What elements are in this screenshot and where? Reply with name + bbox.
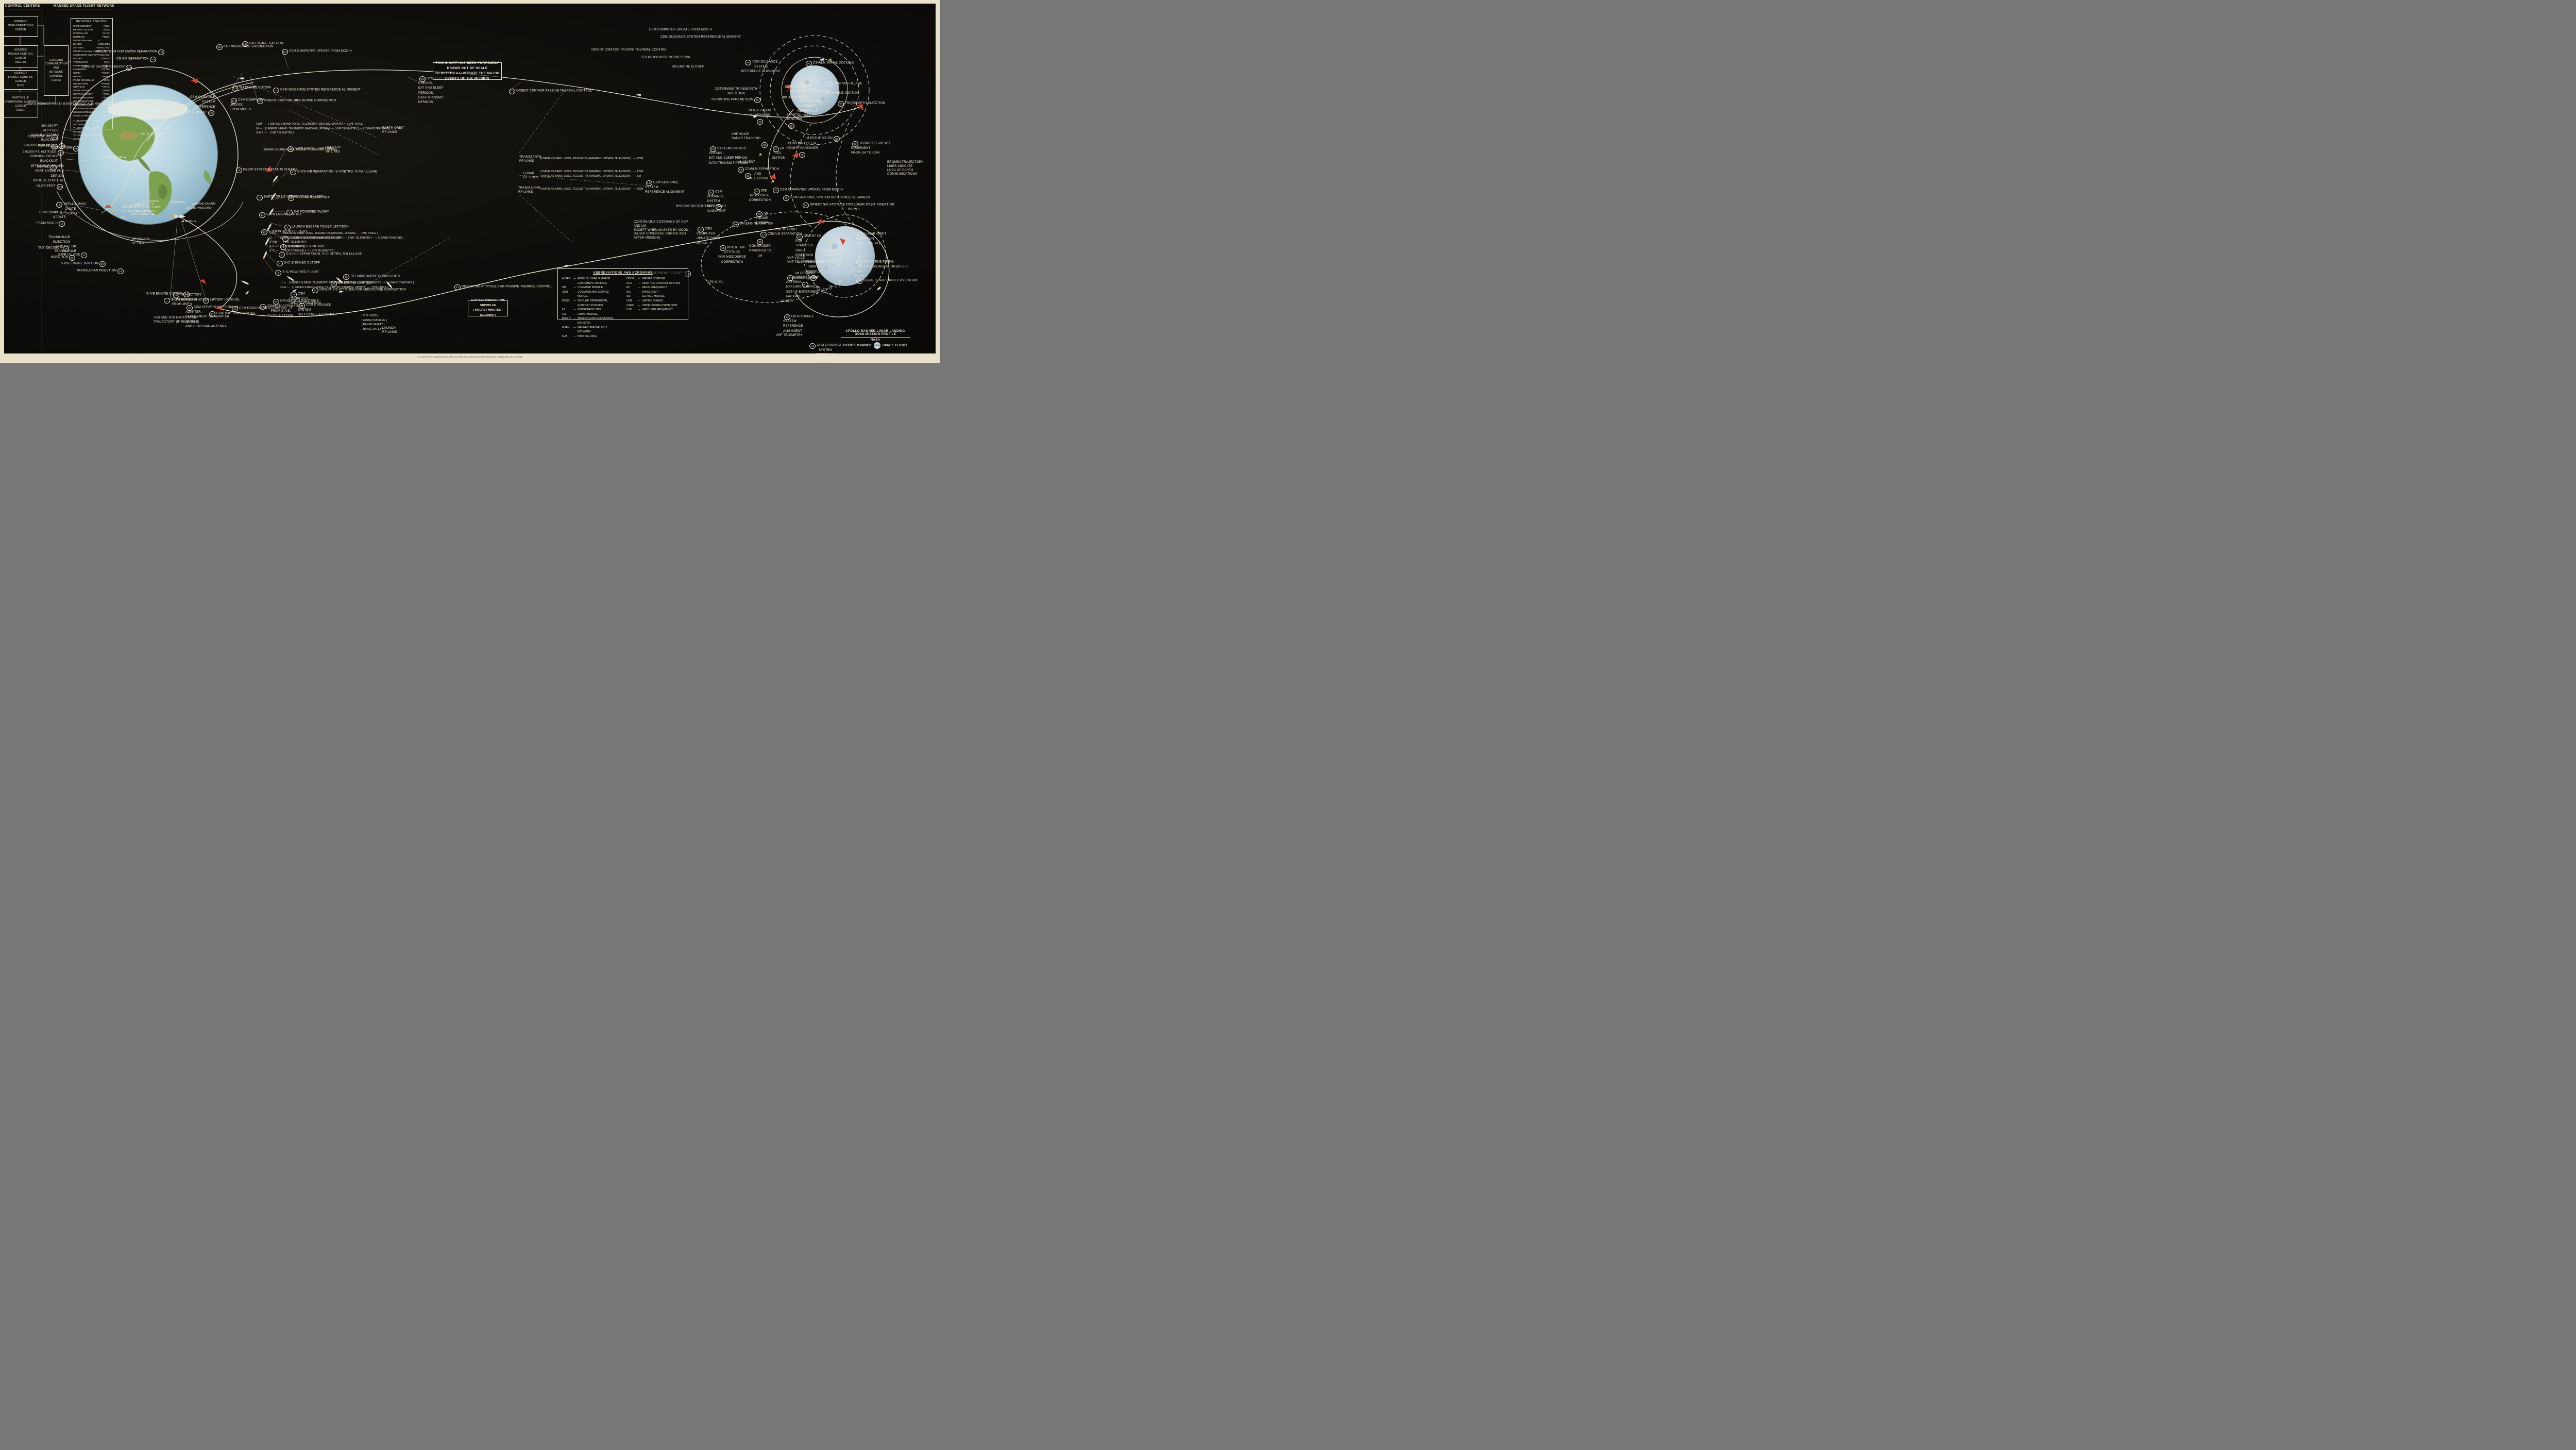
- event-callout: 102CSM GUIDANCE SYSTEMREFERENCE ALIGNMEN…: [645, 180, 686, 196]
- station-name: CARNARVON: [73, 64, 88, 68]
- ground-station-antigua: ANTIGUA: [181, 220, 196, 223]
- rf-source-label: CSM —: [280, 286, 290, 289]
- network-station-row: USNS VANGUARD**(VAN): [73, 96, 110, 100]
- network-station-row: WHITE SANDS(WHS): [73, 89, 110, 93]
- station-name: USNS HUNTSVILLE: [73, 111, 95, 114]
- station-label: GODDARD: [143, 200, 156, 203]
- station-code: *(HTV): [103, 111, 110, 114]
- rf-links-row: CSM —UNIFIED S-BAND: VOICE, TELEMETRY, R…: [278, 286, 415, 289]
- station-label: USNS VANGUARD: [190, 207, 212, 210]
- event-callout: CSM COMPUTER UPDATE FROM MCC-H: [649, 28, 712, 33]
- annotation-label: RECOVERYRF LINKS: [132, 238, 150, 246]
- event-number: 133: [57, 184, 63, 190]
- event-number: 26: [187, 305, 193, 311]
- network-station-row: CORPUS CHRISTI**(TEX): [73, 93, 110, 96]
- rf-links-row: AZUSA TRACKING: [361, 319, 388, 322]
- station-label: ANTIGUA: [185, 220, 196, 223]
- network-station-row: POINT ARGUELLO(CAL): [73, 79, 110, 82]
- rf-links-row: IU —UNIFIED S-BAND: TELEMETRY, RANGING, …: [278, 281, 415, 284]
- rf-link-segment: RANGE SAFETY: [362, 323, 384, 326]
- event-number: 3: [275, 270, 281, 276]
- event-number: 116: [419, 76, 426, 82]
- event-number: 30: [273, 299, 279, 305]
- event-number: 49: [708, 190, 714, 195]
- event-label: TRANSLUNAR INJECTION: [76, 269, 116, 273]
- event-label: CSM COMPUTER UPDATE FROM MCC-H: [649, 28, 712, 31]
- abbreviation-term: MCC-H: [562, 316, 573, 325]
- event-callout: 16BEGIN SYSTEMS STATUS CHECKS: [235, 167, 298, 173]
- annotation-label: VHF TELEMETRY: [776, 334, 803, 338]
- rf-link-segment: RANGE SAFETY: [362, 328, 384, 331]
- rf-links-row: IU —UNIFIED S-BAND: TELEMETRY, RANGING, …: [255, 127, 391, 130]
- event-callout: 122SM ENGINE CUTOFF: [231, 86, 272, 91]
- rf-link-segment: UNIFIED S-BAND: TELEMETRY, RANGING, UPDA…: [265, 127, 330, 130]
- event-label: LM DESCENTENGINE CUTOFF: [792, 272, 819, 280]
- station-dot: [182, 221, 184, 222]
- rf-link-segment: AZUSA TRACKING: [362, 319, 387, 322]
- event-label: CSM 180° TURNAROUND: [216, 312, 255, 315]
- event-number: 56: [803, 203, 809, 208]
- abbreviation-term: SM: [626, 294, 638, 299]
- event-callout: 98TRANSEARTH INJECTION: [837, 101, 885, 107]
- event-callout: CM/SM SEPARATION126: [116, 57, 157, 62]
- event-label: S-IVB ULLAGE: [58, 254, 80, 257]
- event-number: 25: [173, 293, 179, 298]
- event-callout: 91CSM/LM INITIAL DOCKING: [805, 61, 854, 66]
- station-code: (CAL): [104, 79, 110, 82]
- station-code: ***(GDS): [101, 82, 110, 86]
- rf-links-group: IU —UNIFIED S-BAND: TELEMETRY, RANGING, …: [278, 281, 415, 290]
- rf-links-group: CSM —UNIFIED S-BAND: VOICE, TELEMETRY, R…: [268, 232, 404, 254]
- rf-link-segment: UNIFIED S-BAND: VOICE, TELEMETRY, RANGIN…: [540, 188, 631, 191]
- abbreviation-definition: REACTION CONTROL SYSTEM: [642, 281, 680, 286]
- elapsed-line2: ( HOURS : MINUTES : SECONDS ): [468, 308, 507, 318]
- annotation-label: 60 N. M. ORBIT: [774, 228, 797, 232]
- station-label: BERMUDA: [173, 201, 186, 204]
- station-code: **(MER): [101, 104, 110, 107]
- network-station-row: ASCENSION ISLAND**(ACN,ASC): [73, 54, 110, 57]
- station-name: USNS WATERTOWN: [73, 107, 96, 111]
- abbreviation-row: N.M.—NAUTICAL MILE: [562, 334, 619, 339]
- event-callout: CSM GUIDANCE SYSTEMREFERENCE ALIGNMENT12…: [179, 96, 215, 116]
- station-name: GUAM: [73, 72, 80, 75]
- station-name: GRAND BAHAMA ISLAND: [73, 39, 98, 46]
- abbreviation-row: RCS—REACTION CONTROL SYSTEM: [626, 281, 684, 286]
- mission-title-line2: GOSS-MISSION PROFILE: [837, 333, 914, 336]
- abbreviation-row: SM—SERVICE MODULE: [626, 294, 684, 299]
- annotation-label: 2ND AND 3RD EARTH ORBITTRAJECTORY (IF RE…: [154, 316, 199, 325]
- event-label: CSM GUIDANCE SYSTEM REFERENCE ALIGNMENT: [660, 36, 741, 39]
- event-label: BEGIN SYSTEMS STATUS CHECKS: [243, 168, 298, 172]
- rf-link-segment: UNIFIED S-BAND: VOICE, TELEMETRY, RANGIN…: [282, 232, 356, 235]
- rf-link-segment: VHF TELEMETRY: [280, 245, 304, 248]
- station-label: USNS MERCURY: [103, 156, 123, 159]
- network-station-row: USNS MERCURY**(MER): [73, 104, 110, 107]
- ground-station-bermuda: BERMUDA: [170, 201, 186, 204]
- event-callout: ORIENT CSM FOR PASSIVE THERMAL CONTROL: [591, 48, 667, 53]
- rf-source-label: CSM —: [269, 232, 279, 235]
- rf-links-row: S-IC —ODOP TRACKING—VHF TELEMETRY: [268, 249, 404, 252]
- rf-links-row: S-IVB —VHF TELEMETRY: [255, 131, 391, 134]
- event-label: CONSTANT DELTAHEIGHT MANEUVER: [786, 142, 818, 150]
- event-number: 118: [273, 88, 279, 93]
- event-number: 85: [834, 136, 840, 142]
- rf-links-row: UNIFIED S-BAND: VOICE, TELEMETRY, RANGIN…: [539, 157, 645, 160]
- rf-link-segment: ODOP TRACKING: [281, 249, 306, 252]
- event-number: 92: [852, 141, 858, 147]
- abbreviation-row: MSFN—MANNED SPACEFLIGHT NETWORK: [562, 326, 619, 334]
- event-label: BEGIN LUNAR ORBIT EVALUATION: [863, 279, 918, 282]
- event-number: 79: [799, 90, 805, 95]
- abbreviation-row: LM—LUNAR MODULE: [562, 312, 619, 317]
- event-callout: CONSTANT DELTAHEIGHT MANEUVER86: [785, 142, 819, 158]
- annotation-label: TRANSLUNARRF LINKS: [518, 187, 540, 195]
- station-code: **(GBM,GBI): [98, 39, 110, 46]
- network-station-row: GRAND BAHAMA ISLAND**(GBM,GBI): [73, 39, 110, 46]
- event-label: S-IVB ENGINE IGNITION: [61, 262, 98, 265]
- event-number: 22: [99, 261, 106, 267]
- event-number: 91: [806, 61, 812, 66]
- event-callout: CSM GUIDANCE SYSTEM REFERENCE ALIGNMENT: [660, 36, 741, 40]
- station-code: (TAN): [104, 61, 110, 64]
- event-number: 4: [277, 261, 283, 266]
- huntsville-hosc-box: HUNTSVILLEOPERATIONAL SUPPORTCENTER(HOSC…: [3, 92, 38, 117]
- rf-link-segment: UNIFIED S-BAND: TELEMETRY, RANGING, UPDA…: [279, 237, 344, 240]
- station-code: **(BDA): [102, 36, 110, 39]
- event-label: EARTH ORBIT VERIFICATION BY MSFN: [264, 196, 325, 199]
- event-number: 60: [856, 260, 862, 265]
- rf-source-label: S-II —: [269, 245, 278, 248]
- rf-links-row: VHF VOICE: [361, 314, 388, 317]
- abbreviation-definition: INSTRUMENT UNIT: [578, 308, 601, 312]
- event-number: 82: [745, 173, 751, 179]
- nasa-title-block: APOLLO MANNED LUNAR LANDING GOSS-MISSION…: [837, 330, 914, 349]
- abbreviation-row: VHF—VERY HIGH FREQUENCY: [626, 308, 684, 312]
- event-callout: LM RCS IGNITION85: [805, 136, 841, 142]
- station-name: PATRICK AFB: [73, 32, 88, 36]
- event-callout: 88: [760, 142, 769, 148]
- network-station-row: MERRITT ISLAND**(MIL): [73, 28, 110, 32]
- event-callout: DETERMINE TRANSEARTH INJECTIONTHRUSTING …: [710, 88, 762, 103]
- station-code: (PAFB): [103, 32, 110, 36]
- event-number: 115: [509, 89, 515, 94]
- event-callout: 55CSM GUIDANCE SYSTEM REFERENCE ALIGNMEN…: [782, 195, 871, 201]
- network-station-row: USNS WATERTOWN*(WTN): [73, 107, 110, 111]
- rf-links-row: CSM —UNIFIED S-BAND: VOICE, TELEMETRY, R…: [268, 232, 404, 235]
- abbreviation-row: USNS—UNITED STATES NAVAL SHIP: [626, 304, 684, 308]
- abbreviation-term: RF: [626, 285, 638, 290]
- event-label: CSM GUIDANCE SYSTEM REFERENCE ALIGNMENT: [790, 196, 871, 199]
- event-number: 55: [783, 195, 789, 201]
- network-station-row: MADRID***(MAD): [73, 57, 110, 61]
- station-name: CORPUS CHRISTI: [73, 93, 93, 96]
- event-label: DETERMINE TRANSEARTH INJECTIONTHRUSTING …: [711, 88, 757, 101]
- rf-link-segment: C-BAND TRACKING: [363, 127, 390, 130]
- station-name: GUAYMAS: [73, 86, 85, 89]
- event-callout: 59BEGIN LUNAR ORBIT EVALUATION: [855, 278, 918, 284]
- event-number: 98: [838, 101, 844, 107]
- ground-station-cape-kennedy: CAPE KENNEDY: [131, 213, 155, 216]
- event-callout: 93CSM/LM SEPARATION ANDLM JETTISON: [736, 167, 780, 182]
- event-number: 16: [236, 167, 242, 173]
- abbreviation-definition: OFFSET DOPPLER: [642, 277, 665, 281]
- station-dot: [149, 210, 150, 212]
- abbreviation-row: ALSEP—APOLLO LUNAR SURFACE EXPERIMENT PA…: [562, 277, 619, 285]
- rf-link-segment: UNIFIED S-BAND: VOICE, TELEMETRY, RANGIN…: [540, 157, 631, 160]
- event-label: 3RD MIDCOURSECORRECTION: [749, 190, 771, 203]
- abbreviation-term: LM: [562, 312, 573, 317]
- station-name: USNS REDSTONE: [73, 100, 93, 104]
- event-callout: 49CSM GUIDANCESYSTEMREFERENCEALIGNMENT: [707, 190, 734, 214]
- event-number: 14: [259, 212, 265, 218]
- network-station-row: GRAND CANARY ISLAND**(CYI): [73, 50, 110, 54]
- station-code: **(CYI): [103, 50, 110, 54]
- station-name: GOLDSTONE: [73, 82, 88, 86]
- event-label: COMMANDERTRANSFER TO LM: [749, 245, 771, 258]
- event-label: 5TH MIDCOURSE CORRECTION: [641, 56, 690, 59]
- event-callout: 523RD MIDCOURSECORRECTION: [745, 189, 775, 204]
- station-name: CANBERRA: [73, 68, 87, 72]
- event-number: 87: [773, 146, 779, 152]
- annotation-label: BROKEN TRAJECTORY LINES INDICATELOSS OF …: [887, 161, 934, 177]
- rf-source-label: — CSM: [634, 157, 643, 160]
- network-station-row: PATRICK AFB(PAFB): [73, 32, 110, 36]
- station-code: (CNV): [104, 25, 110, 28]
- rf-link-segment: VHF TELEMETRY: [335, 127, 359, 130]
- abbreviation-term: N.M.: [562, 334, 573, 339]
- event-number: 15: [257, 195, 263, 200]
- abbreviation-term: USNS: [626, 304, 638, 308]
- ground-station-usns-vanguard: USNS VANGUARD: [186, 207, 212, 210]
- event-callout: CSM COMPUTER UPDATEFROM MCC-H18: [31, 211, 66, 227]
- annotation-label: 100 N. M. ORBIT: [140, 133, 165, 137]
- event-callout: 58LUNAR ORBIT INSERTION(60 x 170 N. M.): [856, 232, 894, 247]
- event-callout: TRANSLUNAR INJECTION23: [76, 268, 125, 274]
- event-callout: 15EARTH ORBIT VERIFICATION BY MSFN: [256, 195, 325, 200]
- abbreviation-definition: GROUND OPERATIONAL SUPPORT SYSTEMS: [578, 299, 619, 308]
- rf-link-segment: VHF TELEMETRY: [311, 249, 335, 252]
- station-name: BERMUDA: [73, 36, 85, 39]
- houston-mcc-box: HOUSTONMISSION CONTROL CENTER(MCC-H): [3, 45, 38, 68]
- station-name: TANANARIVE: [73, 61, 88, 64]
- gpo-sale-line: For sale by the Superintendent of Docume…: [0, 356, 940, 358]
- network-station-row: GUAM**(GWN): [73, 72, 110, 75]
- event-number: 93: [738, 167, 744, 173]
- event-number: 96: [745, 60, 751, 65]
- abbreviations-right-column: ODOP—OFFSET DOPPLERRCS—REACTION CONTROL …: [626, 277, 684, 339]
- abbreviation-definition: MISSION CONTROL CENTER - HOUSTON: [578, 316, 619, 325]
- rf-links-row: S-IVB —VHF TELEMETRY: [268, 241, 404, 244]
- event-callout: 72LM GUIDANCE SYSTEMREFERENCE ALIGNMENT: [783, 314, 822, 334]
- station-dot: [125, 157, 126, 158]
- rf-link-segment: UNIFIED S-BAND: TELEMETRY, RANGING, UPDA…: [289, 281, 354, 284]
- event-callout: TOUCHDOWN135: [50, 146, 80, 151]
- event-label: SM ENGINE FIRINGORBIT CIRCULARIZATION (6…: [855, 261, 908, 278]
- event-callout: S-IVB ULLAGE21: [58, 252, 88, 258]
- event-number: 127: [126, 65, 132, 71]
- network-station-row: TANANARIVE(TAN): [73, 61, 110, 64]
- station-name: USNS VANGUARD: [73, 96, 94, 100]
- station-dot: [157, 200, 159, 202]
- event-number: 52: [754, 189, 760, 194]
- usb-antenna-footnotes: * USB STATION - 12 FT. ANTENNA** USB STA…: [73, 120, 110, 141]
- station-code: **(CRO): [101, 64, 110, 68]
- event-number: 100: [710, 146, 716, 152]
- network-station-row: BERMUDA**(BDA): [73, 36, 110, 39]
- abbreviation-row: ODOP—OFFSET DOPPLER: [626, 277, 684, 281]
- event-number: 28: [232, 306, 238, 312]
- station-name: MADRID: [73, 57, 82, 61]
- event-label: TRANSEARTH INJECTION: [845, 102, 885, 105]
- rf-link-segment: UNIFIED S-BAND: VOICE, TELEMETRY, RANGIN…: [540, 170, 631, 173]
- abbreviation-row: MCC-H—MISSION CONTROL CENTER - HOUSTON: [562, 316, 619, 325]
- msfn-header: MANNED SPACE FLIGHT NETWORK: [54, 4, 114, 9]
- station-name: CAPE KENNEDY: [73, 25, 92, 28]
- rf-links-row: RANGE SAFETY: [361, 328, 388, 331]
- event-number: 86: [799, 152, 805, 158]
- ground-station-grand-canary: GRAND CANARY: [192, 203, 216, 206]
- station-code: (ARIA): [103, 114, 110, 118]
- event-callout: 118CSM GUIDANCE SYSTEM REFERENCE ALIGNME…: [272, 88, 361, 93]
- rf-link-segment: VHF TELEMETRY: [348, 237, 372, 240]
- annotation-label: LM ASCENT: [737, 161, 755, 165]
- event-number: 102: [646, 180, 652, 186]
- abbreviation-term: IU: [562, 308, 573, 312]
- event-number: 54: [773, 188, 779, 193]
- network-station-row: HAWAII**(HAW): [73, 75, 110, 79]
- network-station-row: GOLDSTONE***(GDS): [73, 82, 110, 86]
- space-flight-label: SPACE FLIGHT: [883, 344, 907, 347]
- event-number: 69: [835, 259, 841, 265]
- abbreviation-definition: SPACECRAFT: [642, 290, 659, 295]
- rf-link-segment: UNIFIED S-BAND: VOICE, TELEMETRY, RANGIN…: [292, 286, 366, 289]
- event-number: 90: [757, 119, 763, 125]
- rf-links-group: UNIFIED S-BAND: VOICE, TELEMETRY, RANGIN…: [539, 157, 645, 162]
- annotation-label: BURN 1: [848, 208, 860, 212]
- event-callout: 48CSM COMPUTERUPDATE FROMMCC-H: [697, 227, 723, 247]
- event-number: 83: [788, 123, 794, 129]
- station-dot: [187, 207, 189, 209]
- abbreviation-row: CM—COMMAND MODULE: [562, 285, 619, 290]
- station-dot: [193, 203, 194, 205]
- abbreviation-term: RCS: [626, 281, 638, 286]
- station-dot: [152, 203, 154, 205]
- event-number: 135: [73, 146, 79, 151]
- abbreviation-term: ALSEP: [562, 277, 573, 285]
- abbreviations-title: ABBREVIATIONS AND ACRONYMS: [562, 272, 684, 275]
- event-number: 61: [809, 343, 816, 349]
- event-callout: 4S-IC ENGINES CUTOFF: [276, 261, 320, 266]
- abbreviation-row: GOSS—GROUND OPERATIONAL SUPPORT SYSTEMS: [562, 299, 619, 308]
- abbreviation-term: S/C: [626, 290, 638, 295]
- event-label: LIFTOFF (00:00:00): [210, 299, 240, 302]
- station-name: GRAND CANARY ISLAND: [73, 50, 101, 54]
- annotation-label: TRANSEARTHRF LINKS: [519, 156, 541, 164]
- apollo-mission-profile-poster: THIS CHART HAS BEEN PURPOSELY DRAWN OUT …: [0, 0, 940, 363]
- station-name: USNS MERCURY: [73, 104, 92, 107]
- event-callout: 3S-IC POWERED FLIGHT: [274, 270, 319, 276]
- event-callout: 123CSM COMPUTER UPDATEFROM MCC-H: [230, 98, 266, 113]
- abbreviation-definition: VERY HIGH FREQUENCY: [642, 308, 673, 312]
- abbreviation-definition: NAUTICAL MILE: [578, 334, 597, 339]
- rf-link-segment: C-BAND TRACKING: [377, 237, 403, 240]
- event-callout: 53SM ENGINECUTOFF: [751, 211, 773, 227]
- event-number: 23: [117, 268, 124, 274]
- event-number: 95: [754, 97, 760, 103]
- rf-source-label: S-IVB —: [256, 131, 267, 134]
- event-number: 78: [799, 78, 805, 84]
- event-number: 125: [158, 49, 164, 55]
- event-label: S-IC ENGINES CUTOFF: [284, 262, 320, 265]
- event-number: 71: [802, 282, 808, 288]
- network-station-row: CARNARVON**(CRO): [73, 64, 110, 68]
- event-label: TOUCHDOWN: [50, 147, 72, 150]
- nasa-word: NASA: [837, 339, 914, 342]
- nasa-meatball-logo: NASA: [874, 342, 880, 349]
- event-callout: 60SM ENGINE FIRINGORBIT CIRCULARIZATION …: [855, 260, 915, 280]
- event-callout: RENDEZVOUSMANEUVERS90: [747, 109, 773, 125]
- network-station-row: GUAYMAS**(GYM): [73, 86, 110, 89]
- event-callout: 87LM RCSIGNITION: [769, 146, 787, 162]
- event-callout: 37ORIENT S/C ATTITUDE FOR PASSIVE THERMA…: [453, 284, 552, 290]
- event-number: 122: [232, 86, 238, 91]
- annotation-label: (ALSEP): [804, 105, 817, 109]
- event-callout: 27CSM 180° TURNAROUND: [208, 311, 255, 317]
- abbreviation-row: CSM—COMMAND AND SERVICE MODULE: [562, 290, 619, 299]
- event-number: 51: [733, 222, 739, 227]
- annotation-label: (ALSEP): [780, 300, 793, 304]
- rf-link-segment: VHF VOICE: [347, 123, 364, 126]
- abbreviation-term: MSFN: [562, 326, 573, 334]
- control-centers-header: CONTROL CENTERS: [5, 4, 40, 9]
- rf-links-group: VHF VOICEAZUSA TRACKINGRANGE SAFETYRANGE…: [361, 314, 388, 332]
- event-callout: 50ORIENT S/C ATTITUDEFOR MIDCOURSECORREC…: [715, 245, 749, 265]
- ground-station-usns-mercury: USNS MERCURY: [103, 156, 127, 159]
- elapsed-time-box: ELAPSED MISSION TIME SHOWN AS ( HOURS : …: [468, 300, 508, 316]
- event-label: CSM/LM INITIAL DOCKING: [813, 62, 854, 65]
- abbreviation-row: USB—UNIFIED S-BAND: [626, 299, 684, 304]
- event-label: CSM COMPUTER UPDATE FROM MCC-H: [289, 50, 352, 53]
- abbreviation-definition: COMMAND AND SERVICE MODULE: [578, 290, 619, 299]
- event-callout: 56ORIENT S/C ATTITUDE FOR LUNAR ORBIT IN…: [802, 203, 894, 208]
- event-callout: 82: [744, 173, 752, 179]
- abbreviation-definition: APOLLO LUNAR SURFACE EXPERIMENT PACKAGE: [578, 277, 619, 285]
- abbreviation-term: CM: [562, 285, 573, 290]
- goddard-gsfc-box: GODDARDCOMMUNICATIONANDNETWORKCONTROL(GS…: [44, 45, 69, 96]
- event-callout: 96CSM GUIDANCE SYSTEMREFERENCE ALIGNMENT: [740, 60, 782, 75]
- event-number: 72: [784, 314, 790, 320]
- event-callout: 1216TH MIDCOURSE CORRECTION: [215, 44, 273, 50]
- event-callout: 14S-IVB ENGINE CUTOFF: [258, 212, 302, 218]
- kennedy-lcc-box: KENNEDYLAUNCH CONTROL CENTER(LCC): [3, 70, 38, 90]
- event-number: 88: [761, 142, 768, 148]
- rf-link-segment: UNIFIED S-BAND: VOICE, TELEMETRY, RANGIN…: [263, 148, 337, 151]
- event-number: 21: [81, 252, 87, 258]
- rf-link-segment: C-BAND TRACKING: [387, 281, 414, 284]
- network-station-row: APOLLO AIRCRAFT(ARIA): [73, 114, 110, 118]
- rf-links-row: IU —UNIFIED S-BAND: TELEMETRY, RANGING, …: [268, 237, 404, 240]
- rf-source-label: CSM —: [256, 123, 266, 126]
- event-number: 50: [720, 245, 726, 251]
- event-callout: SM ENGINE CUTOFF: [672, 65, 704, 70]
- event-number: 37: [454, 284, 461, 290]
- event-label: 6TH MIDCOURSE CORRECTION: [224, 45, 273, 48]
- event-number: 13: [261, 229, 267, 235]
- network-stations-header: NETWORK STATIONS: [73, 20, 110, 23]
- rf-links-group: UNIFIED S-BAND: VOICE, TELEMETRY, RANGIN…: [539, 170, 645, 179]
- abbreviation-term: USB: [626, 299, 638, 304]
- rf-links-group: UNIFIED S-BAND: VOICE, TELEMETRY, RANGIN…: [262, 148, 338, 153]
